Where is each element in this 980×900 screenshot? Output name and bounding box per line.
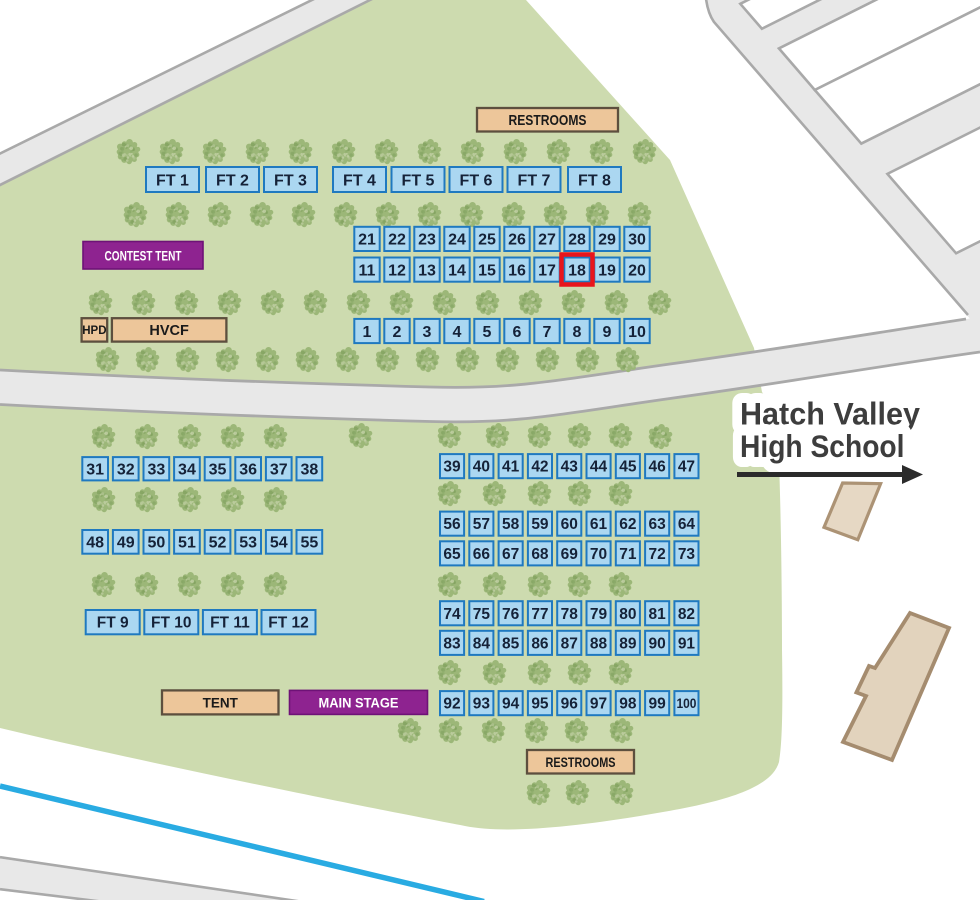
svg-text:FT 3: FT 3 [274,172,307,189]
svg-text:77: 77 [531,606,548,623]
svg-text:88: 88 [590,635,608,652]
svg-text:68: 68 [531,546,549,563]
svg-text:41: 41 [502,459,520,476]
svg-text:13: 13 [418,262,436,279]
svg-text:45: 45 [619,459,637,476]
svg-text:74: 74 [443,606,461,623]
svg-text:86: 86 [531,635,549,652]
svg-text:FT 6: FT 6 [460,172,493,189]
svg-text:FT 5: FT 5 [402,172,435,189]
svg-text:36: 36 [239,462,257,479]
svg-text:89: 89 [619,635,637,652]
svg-text:78: 78 [561,606,579,623]
svg-text:29: 29 [598,232,616,249]
svg-text:44: 44 [590,459,608,476]
svg-text:FT 1: FT 1 [156,172,189,189]
svg-text:MAIN STAGE: MAIN STAGE [319,695,399,710]
svg-text:96: 96 [561,696,579,713]
svg-text:84: 84 [473,635,491,652]
svg-text:56: 56 [443,516,461,533]
svg-text:42: 42 [531,459,548,476]
svg-text:15: 15 [478,262,496,279]
svg-text:FT 7: FT 7 [518,172,551,189]
svg-text:5: 5 [483,324,492,341]
svg-text:20: 20 [628,262,646,279]
svg-text:94: 94 [502,696,520,713]
svg-text:RESTROOMS: RESTROOMS [509,112,587,129]
svg-text:38: 38 [300,462,318,479]
svg-text:39: 39 [443,459,461,476]
svg-text:65: 65 [443,546,461,563]
svg-text:33: 33 [147,462,165,479]
svg-text:FT 10: FT 10 [151,615,191,632]
svg-text:61: 61 [590,516,608,533]
svg-text:32: 32 [117,462,135,479]
svg-text:98: 98 [619,696,637,713]
svg-text:FT 8: FT 8 [578,172,611,189]
svg-text:23: 23 [418,232,436,249]
svg-text:2: 2 [393,324,402,341]
svg-text:6: 6 [513,324,522,341]
svg-text:7: 7 [543,324,552,341]
svg-text:HVCF: HVCF [149,323,189,339]
svg-text:TENT: TENT [203,695,239,710]
svg-text:26: 26 [508,232,526,249]
svg-text:37: 37 [270,462,288,479]
svg-text:58: 58 [502,516,520,533]
svg-text:53: 53 [239,535,257,552]
svg-text:59: 59 [531,516,549,533]
svg-text:30: 30 [628,232,646,249]
svg-text:48: 48 [86,535,104,552]
svg-text:22: 22 [388,232,406,249]
svg-text:Hatch Valley: Hatch Valley [740,396,920,432]
svg-text:19: 19 [598,262,616,279]
svg-text:62: 62 [619,516,636,533]
svg-text:85: 85 [502,635,520,652]
svg-text:87: 87 [561,635,578,652]
svg-text:99: 99 [649,696,667,713]
svg-text:8: 8 [573,324,582,341]
svg-text:81: 81 [649,606,667,623]
svg-text:60: 60 [561,516,578,533]
svg-text:76: 76 [502,606,520,623]
svg-text:HPD: HPD [82,325,106,337]
svg-text:57: 57 [473,516,490,533]
svg-text:55: 55 [300,535,318,552]
svg-text:17: 17 [538,262,556,279]
svg-text:71: 71 [619,546,637,563]
svg-text:82: 82 [678,606,695,623]
svg-text:83: 83 [443,635,461,652]
svg-text:80: 80 [619,606,636,623]
svg-text:4: 4 [453,324,462,341]
svg-text:100: 100 [676,695,696,711]
svg-text:1: 1 [363,324,372,341]
svg-text:21: 21 [358,232,376,249]
svg-text:High School: High School [740,428,905,464]
svg-text:FT 12: FT 12 [268,615,308,632]
svg-text:51: 51 [178,535,196,552]
svg-text:FT 11: FT 11 [210,615,250,632]
svg-text:93: 93 [473,696,491,713]
svg-text:3: 3 [423,324,432,341]
svg-text:18: 18 [568,262,586,279]
svg-text:FT 2: FT 2 [216,172,249,189]
svg-text:46: 46 [649,459,667,476]
svg-text:97: 97 [590,696,607,713]
svg-text:69: 69 [561,546,579,563]
svg-text:92: 92 [443,696,460,713]
svg-text:67: 67 [502,546,519,563]
svg-text:9: 9 [603,324,612,341]
svg-text:25: 25 [478,232,496,249]
svg-text:91: 91 [678,635,696,652]
svg-text:12: 12 [388,262,406,279]
svg-text:90: 90 [649,635,666,652]
svg-text:10: 10 [628,324,646,341]
svg-text:CONTEST TENT: CONTEST TENT [105,247,182,263]
svg-text:27: 27 [538,232,556,249]
svg-text:31: 31 [86,462,104,479]
svg-text:73: 73 [678,546,696,563]
svg-text:72: 72 [649,546,666,563]
svg-text:79: 79 [590,606,608,623]
svg-text:50: 50 [147,535,165,552]
svg-text:40: 40 [473,459,490,476]
svg-text:35: 35 [209,462,227,479]
svg-text:34: 34 [178,462,196,479]
svg-text:43: 43 [561,459,579,476]
svg-text:47: 47 [678,459,695,476]
svg-text:49: 49 [117,535,135,552]
svg-text:28: 28 [568,232,586,249]
svg-text:RESTROOMS: RESTROOMS [546,754,616,770]
svg-text:64: 64 [678,516,696,533]
svg-text:24: 24 [448,232,466,249]
svg-text:FT 9: FT 9 [97,615,129,632]
svg-text:14: 14 [448,262,466,279]
svg-text:11: 11 [359,262,376,279]
svg-text:75: 75 [473,606,491,623]
svg-text:52: 52 [209,535,227,552]
svg-text:63: 63 [649,516,667,533]
svg-text:16: 16 [508,262,526,279]
svg-text:95: 95 [531,696,549,713]
svg-text:70: 70 [590,546,607,563]
svg-text:66: 66 [473,546,491,563]
svg-text:54: 54 [270,535,288,552]
svg-text:FT 4: FT 4 [343,172,376,189]
